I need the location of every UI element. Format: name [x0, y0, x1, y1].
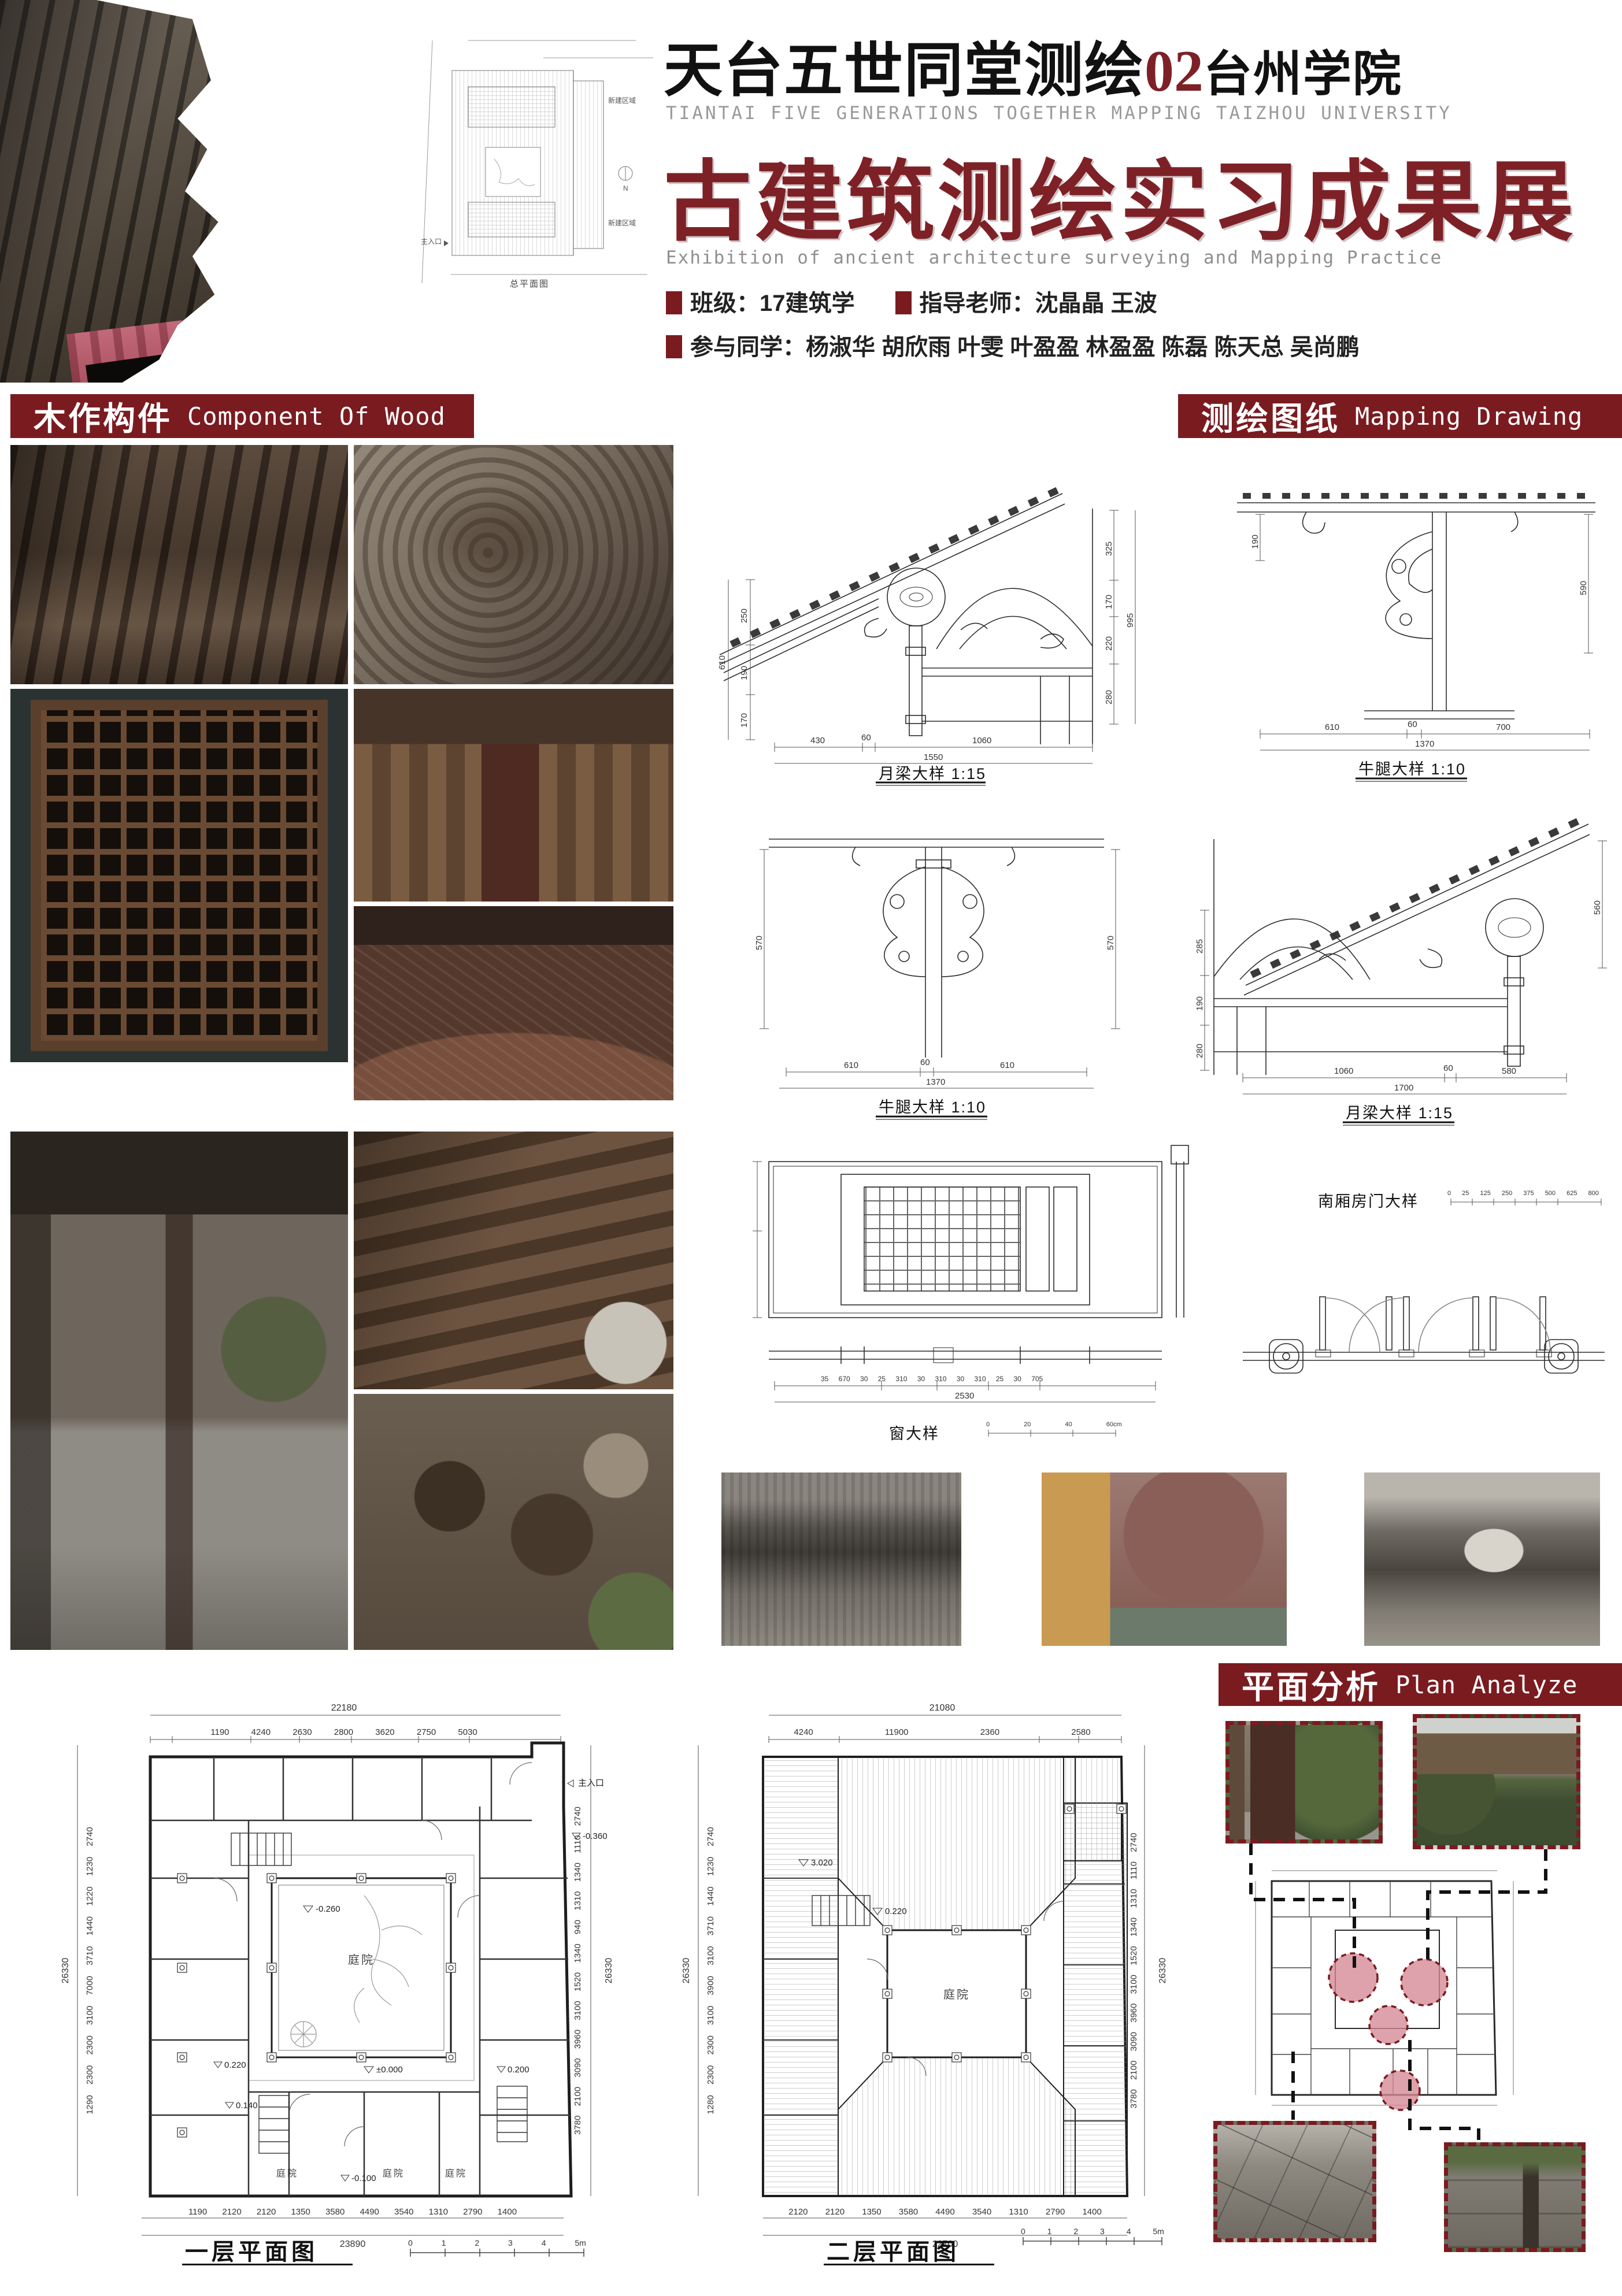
dim: 220 — [1104, 636, 1114, 651]
d4-dimensions — [1200, 841, 1607, 1094]
dim: 26330 — [604, 1958, 614, 1984]
drawing-corbel-detail-1: 190 590 610 60 700 1370 牛腿大样 1:10 — [1191, 462, 1619, 783]
d5-scalebar — [988, 1430, 1116, 1437]
dim: 26330 — [1158, 1958, 1168, 1984]
dim: 1550 — [924, 752, 943, 762]
drawing-moon-beam-detail-2: 285 190 280 560 1060 60 580 1700 月梁大样 1:… — [1191, 769, 1619, 1136]
scale-labels: 0 1 2 3 4 5m — [1021, 2227, 1164, 2236]
dim: 21080 — [929, 1703, 956, 1713]
section-banner-wood: 木作构件 Component Of Wood — [10, 394, 474, 438]
entrance-label: 主入口 — [578, 1778, 604, 1788]
hero-building-photo — [0, 0, 370, 383]
level: ±0.000 — [376, 2065, 403, 2075]
plan-section-title-en: Plan Analyze — [1395, 1671, 1577, 1699]
dim: 60 — [1443, 1063, 1453, 1073]
site-plan-drawing: N 新建区域 新建区域 主入口 总平面图 — [399, 35, 659, 289]
dim: 1060 — [1334, 1066, 1353, 1076]
dim: 26330 — [682, 1958, 691, 1984]
dim: 1280 2300 2300 3100 3900 3100 3710 1440 … — [706, 1827, 716, 2114]
d4-caption: 月梁大样 1:15 — [1346, 1104, 1453, 1122]
dim: 1370 — [1415, 739, 1434, 749]
wood-section-title-zh: 木作构件 — [34, 393, 172, 440]
dim: 580 — [1502, 1066, 1516, 1076]
site-plan-entrance-label: 主入口 — [421, 238, 442, 246]
class-info: 班级：17建筑学 — [690, 291, 855, 316]
dim: 60 — [1408, 719, 1417, 729]
ap-walls — [1272, 1881, 1496, 2095]
dim: 590 — [1579, 581, 1588, 595]
dim: 3780 2100 3090 3960 3100 1520 1340 1310 … — [1129, 1833, 1139, 2109]
dim: 700 — [1496, 722, 1510, 732]
drawing-first-floor-plan: 22180 1190 4240 2630 2800 3620 2750 5030… — [40, 1687, 624, 2265]
class-teacher-row: 班级：17建筑学指导老师：沈晶晶 王波 — [666, 284, 1157, 318]
site-plan-north-label: N — [623, 184, 628, 192]
d6-scalebar — [1451, 1199, 1601, 1206]
fp1-caption: 一层平面图 — [185, 2239, 318, 2265]
photo-stone-relief-bird — [1364, 1472, 1600, 1646]
photo-column-bracket — [354, 689, 673, 902]
dim: 170 — [739, 713, 749, 728]
scale-labels: 0 20 40 60cm — [986, 1421, 1122, 1428]
d2-linework — [1237, 496, 1595, 719]
site-plan-area-top-label: 新建区域 — [608, 96, 636, 105]
red-square-icon — [666, 335, 682, 358]
red-square-icon — [666, 291, 682, 314]
mapping-section-title-en: Mapping Drawing — [1355, 402, 1583, 431]
dim: 2530 — [955, 1391, 974, 1401]
poster-title-org: 台州学院 — [1203, 47, 1402, 101]
dim: 570 — [1106, 936, 1116, 950]
fp1-walls — [150, 1743, 571, 2196]
dim: 22180 — [331, 1703, 357, 1713]
dim: 995 — [1125, 613, 1135, 628]
photo-eave-beams — [354, 1132, 673, 1389]
poster-main-title: 古建筑测绘实习成果展 — [664, 131, 1577, 258]
room-label: 庭院 — [383, 2168, 405, 2179]
dim: 280 — [1195, 1044, 1205, 1058]
drawing-second-floor-plan: 21080 4240 11900 2360 2580 2120 2120 135… — [665, 1687, 1173, 2265]
dim: 610 — [1325, 722, 1339, 732]
title-block: 天台五世同堂测绘02台州学院 TIANTAI FIVE GENERATIONS … — [664, 17, 1622, 381]
section-banner-plan-analyze: 平面分析 Plan Analyze — [1219, 1663, 1622, 1706]
photo-carved-bracket — [354, 445, 673, 684]
level: 0.220 — [885, 1906, 907, 1916]
dim: 325 — [1104, 541, 1114, 556]
d3-caption: 牛腿大样 1:10 — [879, 1099, 986, 1116]
plan-section-title-zh: 平面分析 — [1242, 1661, 1380, 1708]
photo-analyze-wall — [1444, 2142, 1586, 2252]
photo-roof-truss — [10, 445, 348, 684]
level: -0.260 — [316, 1904, 340, 1914]
dim: 610 — [844, 1060, 858, 1070]
red-square-icon — [895, 291, 912, 314]
lattice-window-frame — [31, 700, 328, 1051]
poster-title-zh: 天台五世同堂测绘 — [664, 38, 1145, 103]
drawing-analyze-plan — [1249, 1864, 1520, 2112]
dim: 170 — [1104, 595, 1114, 609]
fp1-courtyard-tree — [291, 1896, 422, 2047]
scale-labels: 0 1 2 3 4 5m — [408, 2238, 586, 2247]
dim: 560 — [1593, 900, 1602, 915]
fp2-scalebar — [1023, 2237, 1162, 2245]
dim: 26330 — [61, 1958, 71, 1984]
dim: 3780 2100 3090 3960 3100 1520 1340 940 1… — [573, 1807, 583, 2135]
d5-caption: 窗大样 — [889, 1425, 939, 1442]
teacher-info: 指导老师：沈晶晶 王波 — [920, 291, 1157, 316]
dim: 1700 — [1394, 1083, 1413, 1093]
dim: 2120 2120 1350 3580 4490 3540 1310 2790 … — [788, 2207, 1102, 2217]
students-info: 参与同学：杨淑华 胡欣雨 叶雯 叶盈盈 林盈盈 陈磊 陈天总 吴尚鹏 — [690, 335, 1360, 360]
drawing-window-detail: 35 670 30 25 310 30 310 30 310 25 30 705… — [734, 1138, 1197, 1462]
dim: 35 670 30 25 310 30 310 30 310 25 30 705 — [821, 1375, 1043, 1383]
photo-analyze-courtyard — [1413, 1714, 1580, 1849]
room-label: 庭院 — [276, 2168, 298, 2179]
room-label: 庭院 — [943, 1988, 970, 2001]
dim: 610 — [717, 655, 727, 670]
dim: 1190 2120 2120 1350 3580 4490 3540 1310 … — [188, 2207, 517, 2217]
drawing-corbel-detail-2: 570 570 610 60 610 1370 牛腿大样 1:10 — [711, 786, 1156, 1124]
d6-caption: 南厢房门大样 — [1318, 1193, 1419, 1210]
level: 0.200 — [508, 2065, 529, 2075]
scale-labels: 0 25 125 250 375 500 625 800 — [1447, 1190, 1599, 1197]
d6-linework — [1243, 1297, 1605, 1373]
dim: 60 — [920, 1058, 930, 1067]
photo-courtyard-column — [10, 1132, 348, 1650]
photo-crescent-beam — [354, 906, 673, 1100]
dim: 190 — [739, 666, 749, 680]
fp2-caption: 二层平面图 — [827, 2239, 960, 2265]
room-label: 庭院 — [348, 1953, 375, 1967]
fp1-levels: -0.260 ±0.000 0.220 0.140 0.200 -0.100 -… — [214, 1778, 608, 2183]
d1-caption: 月梁大样 1:15 — [879, 765, 986, 782]
dim: 4240 11900 2360 2580 — [794, 1727, 1090, 1737]
photo-analyze-veranda — [1225, 1721, 1383, 1844]
level: 0.140 — [236, 2101, 258, 2110]
fp2-walls — [763, 1757, 1127, 2196]
dim: 250 — [739, 609, 749, 623]
dim: 190 — [1195, 996, 1205, 1011]
mapping-section-title-zh: 测绘图纸 — [1201, 393, 1340, 440]
dim: 60 — [861, 733, 871, 743]
fp1-scalebar — [410, 2249, 584, 2257]
dim: 1290 2300 2300 3100 7000 3710 1440 1220 … — [85, 1827, 95, 2114]
photo-lattice-window — [10, 689, 348, 1062]
ap-dims — [1256, 1871, 1513, 2105]
room-label: 庭院 — [445, 2168, 467, 2179]
site-plan-caption: 总平面图 — [510, 279, 549, 289]
d4-linework — [1214, 821, 1590, 1075]
dim: 1060 — [972, 736, 991, 745]
poster-main-title-en: Exhibition of ancient architecture surve… — [666, 247, 1442, 268]
drawing-door-plan-detail: 南厢房门大样 0 25 125 250 375 500 625 800 — [1225, 1179, 1622, 1445]
photo-analyze-pavement — [1213, 2121, 1376, 2242]
ap-highlight-circles — [1329, 1953, 1447, 2110]
students-row: 参与同学：杨淑华 胡欣雨 叶雯 叶盈盈 林盈盈 陈磊 陈天总 吴尚鹏 — [666, 328, 1360, 362]
photo-painted-bracket — [1042, 1472, 1287, 1646]
d2-dimensions — [1256, 514, 1593, 750]
photo-eave-carving — [354, 1394, 673, 1650]
poster-title-row: 天台五世同堂测绘02台州学院 — [664, 23, 1402, 108]
site-plan-area-bottom-label: 新建区域 — [608, 218, 636, 227]
dim: 1190 4240 2630 2800 3620 2750 5030 — [210, 1727, 477, 1737]
level: 0.220 — [224, 2060, 246, 2070]
photo-stone-relief-1 — [721, 1472, 961, 1646]
dim: 280 — [1104, 690, 1114, 704]
drawing-moon-beam-detail-1: 250 190 170 610 325 170 220 280 995 430 … — [688, 455, 1156, 786]
dim: 570 — [754, 936, 764, 950]
dim: 1370 — [926, 1077, 945, 1087]
level: -0.100 — [351, 2173, 376, 2183]
fp1-dim-frame — [77, 1715, 591, 2235]
level: -0.360 — [583, 1831, 608, 1841]
poster-title-number: 02 — [1145, 39, 1203, 104]
level: 3.020 — [811, 1858, 833, 1868]
d5-linework — [769, 1145, 1188, 1364]
d3-dimensions — [760, 850, 1120, 1088]
dim: 285 — [1195, 939, 1205, 954]
dim: 23890 — [340, 2239, 366, 2249]
dim: 610 — [1000, 1060, 1014, 1070]
wood-section-title-en: Component Of Wood — [187, 402, 446, 431]
d3-linework — [769, 839, 1104, 1058]
d1-linework — [720, 490, 1093, 744]
poster-page: N 新建区域 新建区域 主入口 总平面图 天台五世同堂测绘02台州学院 TIAN… — [0, 0, 1622, 2296]
dim: 430 — [810, 736, 825, 745]
poster-title-en: TIANTAI FIVE GENERATIONS TOGETHER MAPPIN… — [666, 103, 1452, 124]
section-banner-mapping: 测绘图纸 Mapping Drawing — [1178, 394, 1622, 438]
dim: 190 — [1250, 535, 1260, 549]
